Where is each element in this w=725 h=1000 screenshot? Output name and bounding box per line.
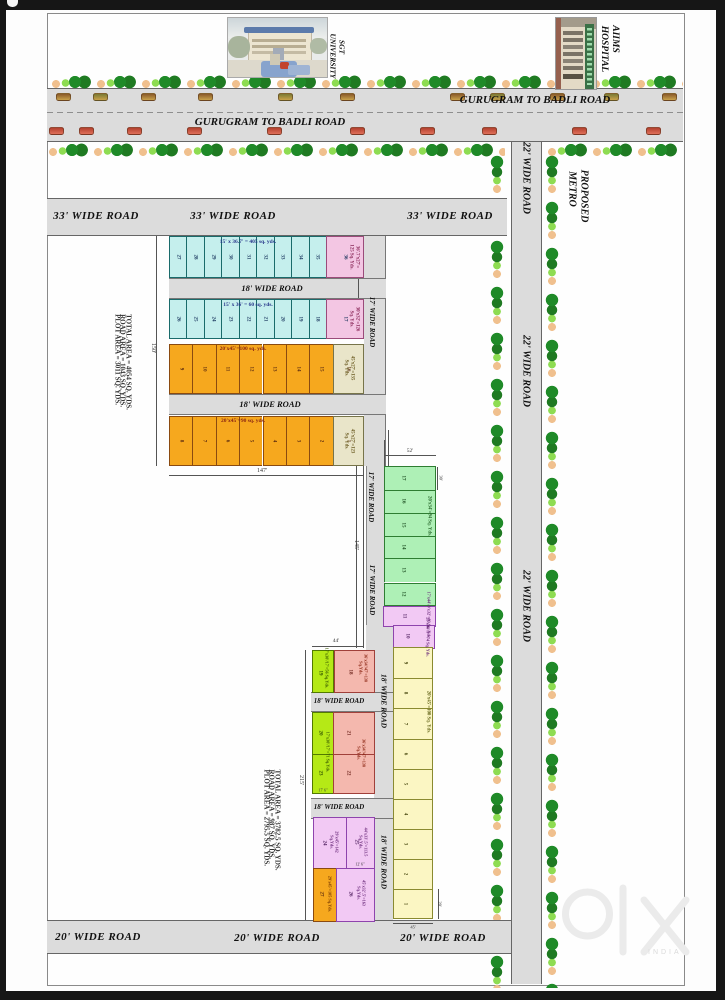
svg-text:INDIA: INDIA <box>648 949 682 956</box>
